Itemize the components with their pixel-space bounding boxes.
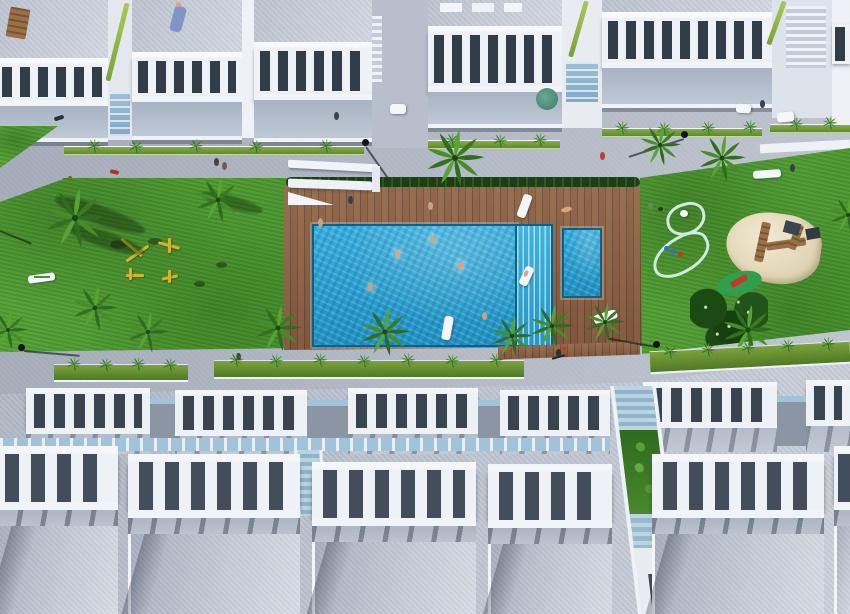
person-lying bbox=[561, 206, 573, 213]
terrace-railing bbox=[175, 396, 307, 430]
aerial-render-scene bbox=[0, 0, 850, 614]
shrub bbox=[700, 342, 716, 358]
shrub bbox=[444, 353, 460, 369]
townhouse-terrace bbox=[834, 446, 850, 614]
roof-terrace-railing bbox=[254, 48, 372, 94]
terrace-railing bbox=[26, 394, 150, 428]
terrace-railing bbox=[834, 454, 850, 502]
shrub bbox=[248, 139, 264, 155]
rooftop bbox=[602, 0, 772, 12]
person bbox=[334, 112, 339, 120]
townhouse-roof bbox=[488, 544, 612, 614]
railing-shadow bbox=[652, 518, 824, 534]
palm-tree bbox=[126, 310, 170, 354]
wall-shadow bbox=[132, 140, 242, 144]
gym-equipment bbox=[168, 270, 171, 283]
terrace-band bbox=[254, 100, 372, 142]
shrub bbox=[488, 352, 504, 368]
ramp-flight bbox=[288, 160, 378, 173]
person bbox=[214, 158, 219, 166]
person bbox=[222, 162, 227, 170]
terrace-railing bbox=[652, 462, 824, 510]
shrub bbox=[318, 138, 334, 154]
building-block bbox=[832, 0, 850, 132]
parapet bbox=[488, 464, 612, 472]
person-jogging bbox=[600, 152, 605, 160]
building-block bbox=[132, 0, 242, 144]
terrace-railing bbox=[348, 394, 478, 428]
pool-toy bbox=[680, 210, 688, 217]
terrace-railing bbox=[128, 462, 300, 510]
roof-terrace-railing bbox=[132, 58, 242, 96]
parapet bbox=[652, 454, 824, 462]
terrace-railing bbox=[312, 470, 476, 518]
shrub bbox=[86, 138, 102, 154]
railing-shadow bbox=[312, 526, 476, 542]
roof-terrace-railing bbox=[428, 32, 562, 86]
building-block bbox=[428, 0, 562, 132]
rooftop bbox=[132, 0, 242, 52]
roof-unit bbox=[504, 3, 522, 12]
swimmer bbox=[430, 236, 435, 243]
building-block bbox=[0, 0, 108, 146]
wall-shadow bbox=[0, 526, 38, 614]
railing-shadow bbox=[0, 510, 118, 526]
palm-tree bbox=[253, 303, 303, 353]
divider-wall bbox=[242, 0, 254, 138]
wall-shadow bbox=[646, 534, 695, 614]
townhouse-roof bbox=[652, 534, 824, 614]
townhouse-terrace bbox=[312, 462, 476, 614]
recessed-terrace bbox=[777, 396, 806, 446]
townhouse-roof bbox=[128, 534, 300, 614]
palm-tree bbox=[424, 127, 486, 189]
townhouse-terrace bbox=[128, 454, 300, 614]
equipment-mat bbox=[216, 262, 227, 268]
lamp-post bbox=[681, 131, 688, 138]
roof-unit bbox=[472, 3, 494, 12]
wall-shadow bbox=[122, 534, 171, 614]
green-strip bbox=[105, 3, 129, 82]
shrub bbox=[130, 356, 146, 372]
terrace-railing bbox=[500, 396, 610, 430]
roof-unit bbox=[440, 3, 462, 12]
shrub bbox=[66, 356, 82, 372]
shrub bbox=[356, 353, 372, 369]
stair-glass bbox=[614, 386, 657, 430]
townhouse-terrace bbox=[652, 454, 824, 614]
shrub bbox=[188, 138, 204, 154]
ledge bbox=[0, 502, 118, 510]
building-block bbox=[602, 0, 772, 116]
ramp-flight bbox=[288, 179, 372, 191]
palm-tree bbox=[584, 301, 626, 343]
person-seated bbox=[760, 100, 765, 108]
terrace-railing bbox=[488, 472, 612, 520]
kids-pool bbox=[562, 228, 602, 298]
shrub bbox=[822, 115, 838, 131]
palm-tree bbox=[43, 186, 107, 250]
rooftop bbox=[254, 0, 372, 42]
palm-tree bbox=[638, 123, 682, 167]
sunbather bbox=[176, 2, 181, 7]
townhouse-roof bbox=[312, 542, 476, 614]
ledge bbox=[312, 518, 476, 526]
building-block bbox=[254, 0, 372, 146]
person-pool-edge bbox=[318, 218, 323, 227]
stairs bbox=[786, 6, 826, 68]
roof-terrace-railing bbox=[0, 64, 108, 100]
bench bbox=[753, 169, 781, 179]
townhouse-terrace bbox=[806, 380, 850, 452]
palm-tree bbox=[194, 176, 242, 224]
shrub bbox=[492, 133, 508, 149]
green-strip bbox=[568, 0, 589, 57]
stairwell bbox=[108, 0, 132, 140]
person bbox=[790, 164, 795, 172]
railing-shadow bbox=[834, 510, 850, 526]
parapet bbox=[0, 446, 118, 454]
townhouse-terrace bbox=[0, 446, 118, 614]
ledge bbox=[488, 520, 612, 528]
terrace-band bbox=[602, 68, 772, 108]
patio-table bbox=[390, 104, 406, 114]
shrub bbox=[740, 340, 756, 356]
terrace-band bbox=[132, 102, 242, 140]
railing-shadow bbox=[488, 528, 612, 544]
swimmer bbox=[368, 283, 373, 291]
ramp-landing bbox=[288, 192, 334, 205]
railing-shadow bbox=[128, 518, 300, 534]
parapet bbox=[128, 454, 300, 462]
palm-tree bbox=[828, 195, 850, 235]
townhouse-terrace bbox=[643, 382, 777, 452]
palm-tree bbox=[529, 303, 575, 349]
person bbox=[648, 202, 653, 210]
parapet bbox=[834, 446, 850, 454]
wall-shadow bbox=[307, 542, 354, 614]
caterpillar-toy bbox=[671, 249, 676, 254]
shrub bbox=[662, 344, 678, 360]
lamp-shadow bbox=[0, 230, 32, 245]
shrub bbox=[312, 352, 328, 368]
caterpillar-toy bbox=[678, 252, 683, 257]
parasol bbox=[536, 88, 558, 110]
swimmer bbox=[458, 262, 463, 270]
palm-tree bbox=[697, 133, 747, 183]
wall-shadow bbox=[483, 544, 529, 614]
shrub bbox=[614, 120, 630, 136]
palm-tree bbox=[359, 306, 411, 358]
sun-lounger bbox=[28, 272, 56, 284]
lamp-post bbox=[653, 341, 660, 348]
caterpillar-toy bbox=[664, 246, 669, 251]
terrace-table bbox=[777, 111, 795, 123]
shrub bbox=[268, 353, 284, 369]
terrace-railing bbox=[0, 454, 118, 502]
stairwell bbox=[562, 0, 602, 128]
terrace-railing bbox=[806, 386, 850, 420]
shrub bbox=[780, 338, 796, 354]
recessed-patio bbox=[372, 0, 428, 148]
shrub bbox=[98, 357, 114, 373]
palm-tree bbox=[0, 309, 29, 351]
equipment-mat bbox=[194, 281, 205, 287]
palm-tree bbox=[71, 284, 119, 332]
terrace-table bbox=[736, 104, 751, 114]
shrub bbox=[532, 132, 548, 148]
lamp-post bbox=[362, 139, 369, 146]
lounger-stripe bbox=[34, 276, 50, 278]
townhouse-terrace bbox=[488, 464, 612, 614]
shrub bbox=[162, 357, 178, 373]
roof-terrace-railing bbox=[602, 18, 772, 62]
shrub bbox=[400, 352, 416, 368]
person bbox=[482, 312, 487, 320]
stairs bbox=[372, 16, 382, 82]
shrub bbox=[228, 352, 244, 368]
stairwell bbox=[772, 0, 832, 118]
gym-equipment bbox=[129, 268, 132, 280]
hedge-strip bbox=[770, 124, 850, 133]
ledge bbox=[652, 510, 824, 518]
dog bbox=[658, 207, 663, 211]
townhouse-roof bbox=[834, 526, 850, 614]
stair-glass bbox=[566, 62, 598, 102]
ledge bbox=[128, 510, 300, 518]
swimmer bbox=[395, 250, 400, 258]
roof-terrace-railing bbox=[832, 24, 850, 64]
main-pool bbox=[312, 224, 517, 347]
stair-glass bbox=[110, 92, 130, 136]
gym-equipment bbox=[168, 238, 171, 253]
sun-lounger bbox=[516, 193, 533, 219]
terrace-railing bbox=[643, 388, 777, 422]
shrub bbox=[820, 336, 836, 352]
parapet bbox=[312, 462, 476, 470]
person-cyclist bbox=[556, 349, 561, 357]
shrub bbox=[128, 139, 144, 155]
townhouse-roof bbox=[0, 526, 118, 614]
ledge bbox=[834, 502, 850, 510]
access-ramp bbox=[288, 160, 380, 206]
ramp-wall bbox=[372, 166, 380, 192]
person bbox=[428, 202, 433, 210]
